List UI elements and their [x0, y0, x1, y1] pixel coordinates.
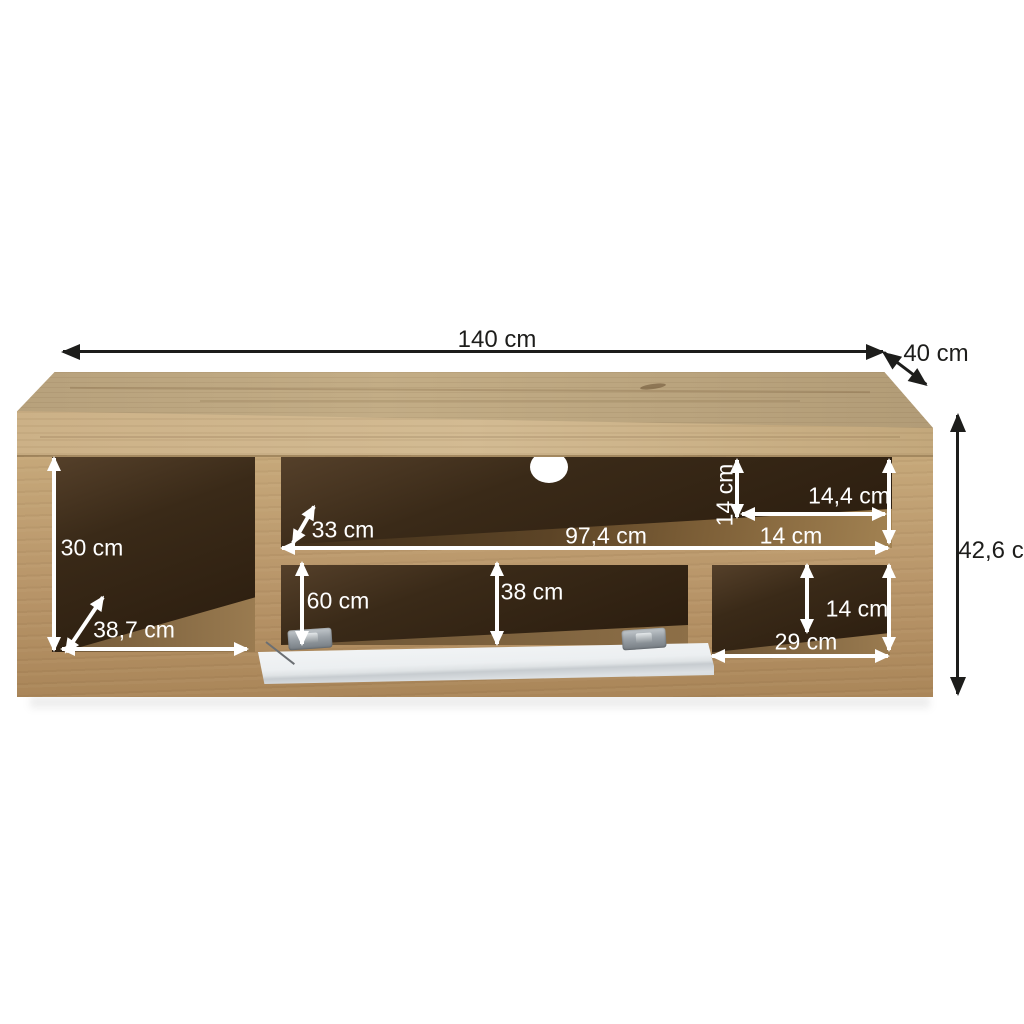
dim-label-shelf-width: 97,4 cm [565, 525, 647, 548]
dim-label-shelf-depth: 33 cm [312, 519, 375, 542]
hinge-right [621, 627, 666, 650]
dim-label-total-depth: 40 cm [903, 342, 968, 366]
wood-grain-streak [40, 436, 900, 438]
cable-hole [530, 457, 568, 483]
wood-grain-streak [200, 400, 800, 402]
furniture-dimension-diagram: 140 cm 40 cm 42,6 cm 30 cm 38,7 cm 33 cm… [0, 0, 1024, 1024]
hinge-pin [636, 632, 653, 643]
dim-arrow-right-bottom-width [712, 654, 888, 658]
dim-arrow-right-bottom-inner [805, 565, 809, 632]
dim-label-left-niche-width: 38,7 cm [93, 619, 175, 642]
dim-label-right-shelf-width: 14 cm [760, 525, 823, 548]
dim-label-flap-niche-width: 60 cm [307, 590, 370, 613]
dim-label-right-top-width: 14,4 cm [808, 485, 890, 508]
cabinet-shadow [30, 696, 930, 708]
dim-arrow-left-niche-height [52, 458, 56, 650]
dim-label-center-niche-height: 38 cm [501, 581, 564, 604]
dim-label-right-back-height: 14 cm [714, 464, 737, 527]
dim-arrow-flap-niche [300, 563, 304, 644]
dim-label-left-niche-height: 30 cm [61, 537, 124, 560]
dim-label-total-width: 140 cm [458, 328, 537, 352]
dim-arrow-center-niche-height [495, 563, 499, 644]
dim-arrow-right-top-width [742, 512, 885, 516]
dim-arrow-left-niche-width [62, 647, 247, 651]
dim-label-right-bottom-width: 29 cm [775, 631, 838, 654]
dim-label-right-bottom-height: 14 cm [826, 598, 889, 621]
dim-label-total-height: 42,6 cm [958, 539, 1024, 563]
